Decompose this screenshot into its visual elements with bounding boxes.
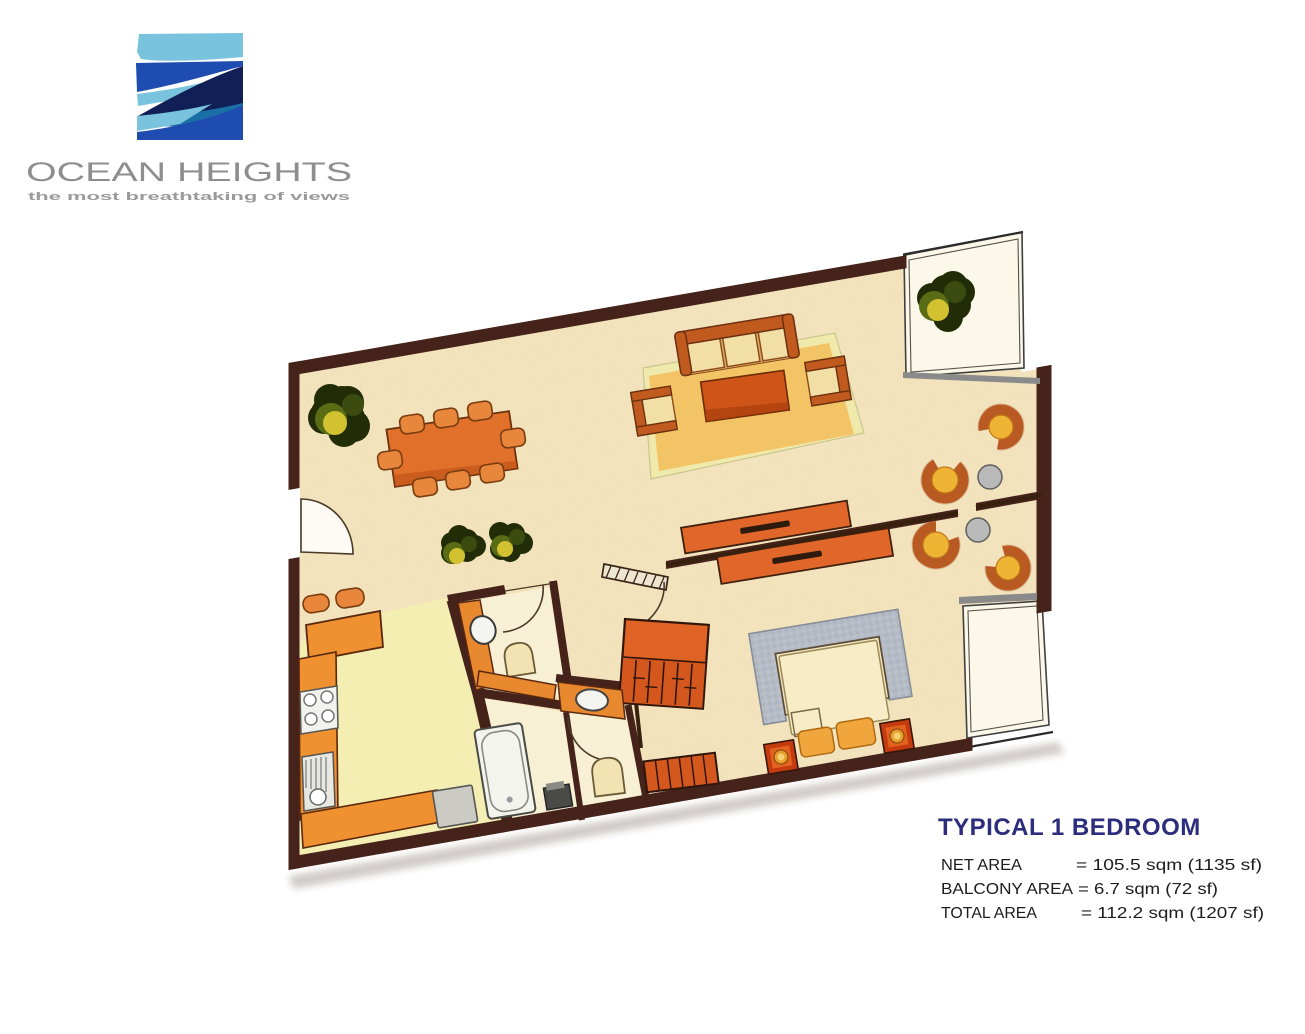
svg-text:TYPICAL 1 BEDROOM: TYPICAL 1 BEDROOM	[938, 814, 1201, 841]
svg-text:BALCONY AREA: BALCONY AREA	[941, 881, 1073, 898]
svg-text:TOTAL AREA: TOTAL AREA	[941, 905, 1037, 922]
svg-text:NET AREA: NET AREA	[941, 857, 1022, 874]
svg-text:= 112.2 sqm (1207 sf): = 112.2 sqm (1207 sf)	[1081, 905, 1264, 922]
svg-text:= 105.5 sqm (1135 sf): = 105.5 sqm (1135 sf)	[1076, 857, 1262, 874]
svg-text:the most breathtaking of views: the most breathtaking of views	[28, 191, 350, 203]
svg-text:OCEAN HEIGHTS: OCEAN HEIGHTS	[26, 157, 352, 187]
svg-text:= 6.7 sqm (72 sf): = 6.7 sqm (72 sf)	[1078, 881, 1218, 898]
